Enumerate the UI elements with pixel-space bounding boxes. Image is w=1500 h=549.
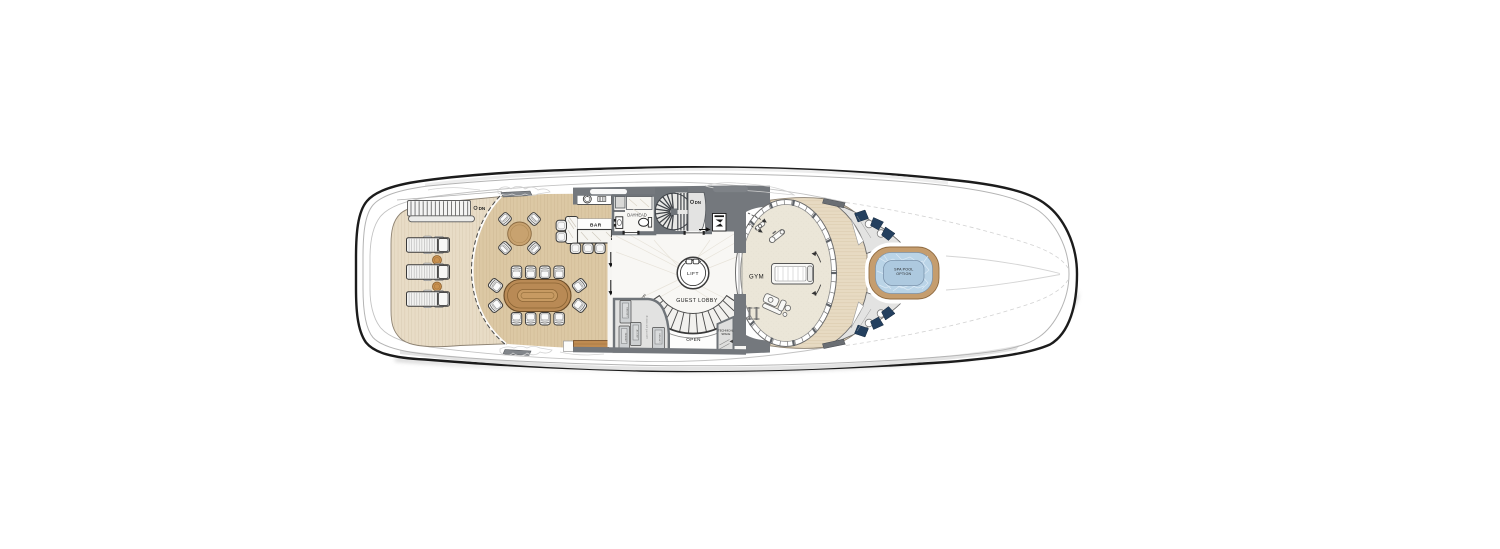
svg-text:GEN/SET: GEN/SET (658, 333, 660, 343)
svg-text:TECHNICAL: TECHNICAL (718, 328, 734, 332)
svg-text:SPA POOL: SPA POOL (894, 268, 913, 272)
svg-text:DAYHEAD: DAYHEAD (627, 212, 647, 217)
svg-text:SPACE: SPACE (721, 332, 730, 336)
svg-text:OPTION: OPTION (896, 272, 911, 276)
svg-text:DN: DN (695, 200, 701, 205)
svg-text:GEN/SET: GEN/SET (626, 307, 628, 317)
svg-text:GUEST LOBBY: GUEST LOBBY (676, 298, 718, 304)
svg-text:GEN/SET: GEN/SET (624, 333, 626, 343)
svg-text:GYM: GYM (749, 275, 764, 281)
svg-text:LIFT: LIFT (687, 271, 699, 277)
svg-text:OPEN: OPEN (686, 337, 701, 342)
svg-text:AC UNIT: AC UNIT (635, 330, 638, 339)
svg-text:db stairs and guest WD: db stairs and guest WD (645, 315, 648, 339)
svg-text:DN: DN (479, 206, 486, 211)
svg-text:BAR: BAR (590, 223, 602, 229)
